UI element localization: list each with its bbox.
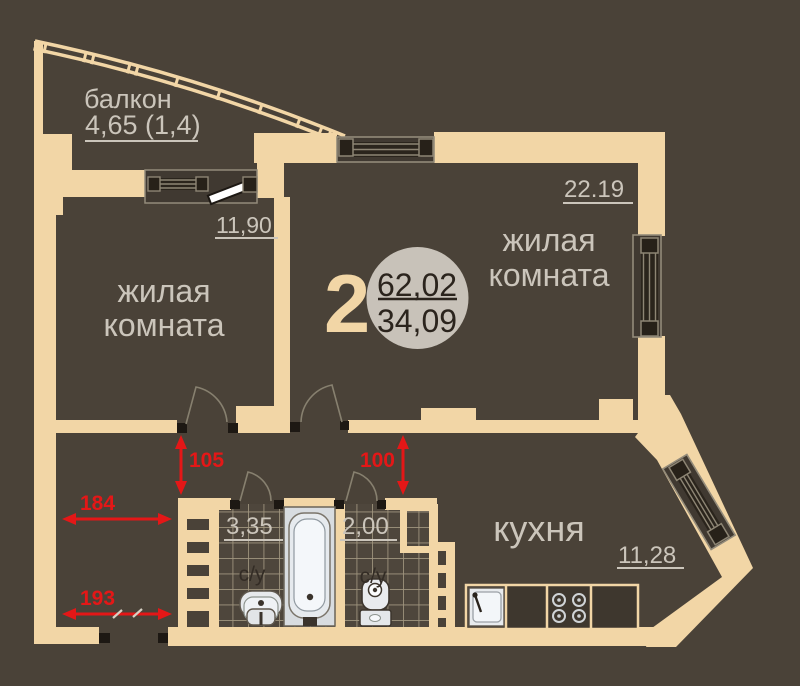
svg-text:193: 193 — [80, 587, 115, 610]
svg-text:11,28: 11,28 — [618, 542, 676, 569]
svg-text:22.19: 22.19 — [564, 176, 624, 203]
svg-text:4,65 (1,4): 4,65 (1,4) — [85, 110, 201, 140]
svg-text:184: 184 — [80, 492, 115, 515]
svg-text:2: 2 — [324, 257, 370, 350]
svg-text:с/у: с/у — [360, 565, 387, 588]
svg-text:2,00: 2,00 — [342, 513, 389, 540]
svg-text:кухня: кухня — [493, 508, 585, 549]
svg-text:100: 100 — [360, 449, 395, 472]
svg-text:жилая: жилая — [502, 222, 595, 258]
svg-text:105: 105 — [189, 449, 224, 472]
svg-text:с/у: с/у — [239, 563, 266, 586]
svg-text:жилая: жилая — [117, 273, 210, 309]
svg-text:11,90: 11,90 — [216, 212, 272, 238]
svg-text:62,02: 62,02 — [377, 267, 457, 303]
svg-text:34,09: 34,09 — [377, 303, 457, 339]
svg-text:3,35: 3,35 — [226, 513, 273, 540]
svg-text:комната: комната — [488, 257, 609, 293]
svg-text:комната: комната — [103, 307, 224, 343]
